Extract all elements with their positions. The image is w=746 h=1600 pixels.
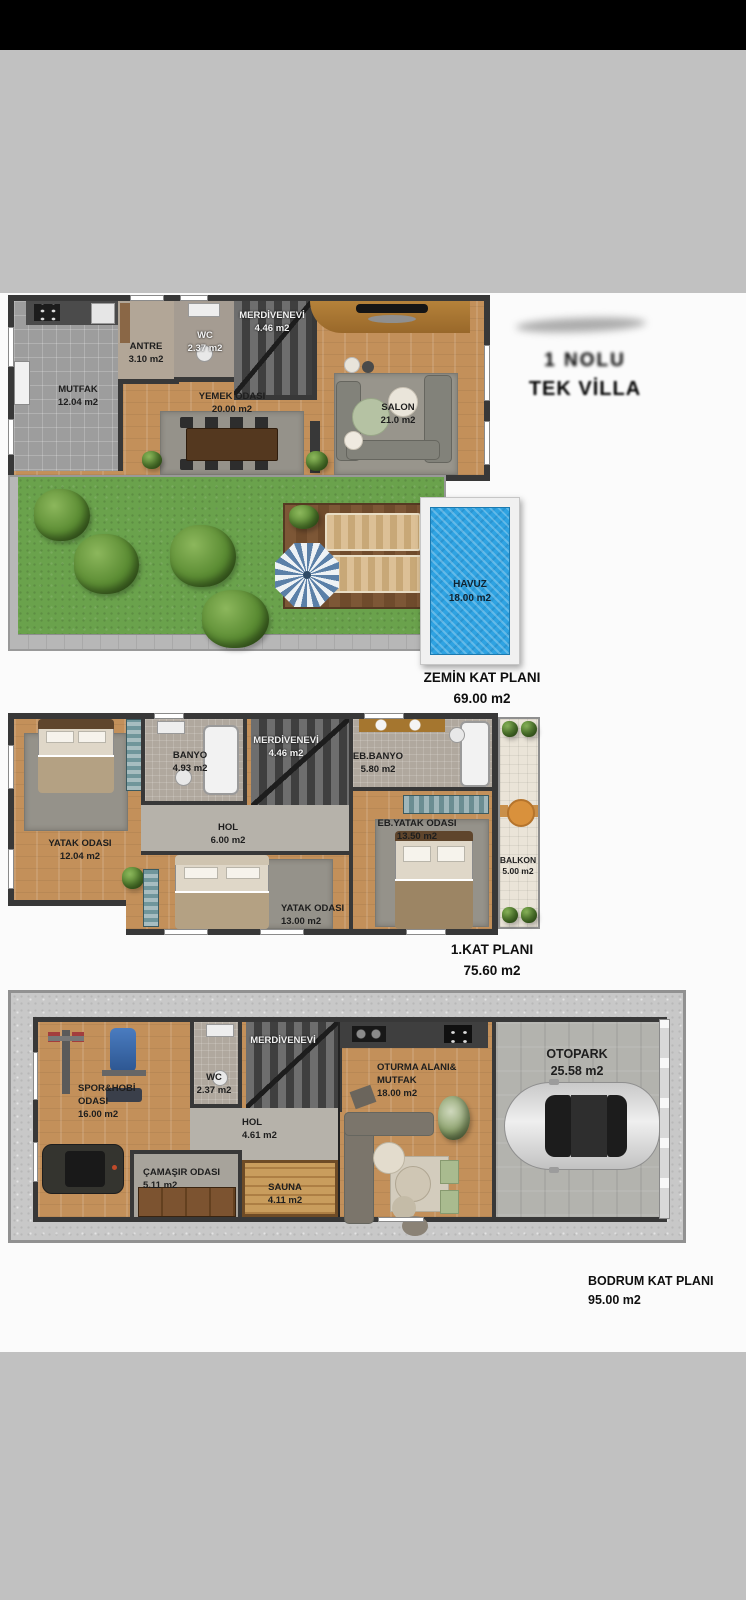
window-top-2: [364, 713, 404, 719]
coffee-table-white: [373, 1142, 405, 1174]
window-left-2: [8, 849, 14, 889]
tv-console: [310, 301, 470, 333]
bed-pillow: [437, 846, 466, 861]
car-roof: [571, 1095, 607, 1157]
bedroom2-bed: [175, 855, 269, 929]
balcony-bush: [521, 907, 537, 923]
bed-pillow: [78, 731, 106, 743]
salon-deco-dot: [362, 361, 374, 373]
room-label-merdivenevi-ground: MERDİVENEVİ4.46 m2: [222, 310, 322, 336]
room-label-mutfak: MUTFAK12.04 m2: [38, 384, 118, 410]
plant-left: [142, 451, 162, 469]
building-notch: [8, 900, 126, 935]
window-bottom-2: [260, 929, 304, 935]
terrace-deck: [283, 503, 423, 609]
vanity-counter: [359, 719, 445, 732]
tv-icon: [356, 304, 428, 313]
room-label-yatak-odasi-1: YATAK ODASI12.04 m2: [30, 838, 130, 864]
room-label-spor-hobi: SPOR&HOBİ ODASI16.00 m2: [78, 1083, 150, 1121]
tree-4: [202, 590, 269, 648]
bed-headboard: [38, 719, 114, 729]
chair-sage: [440, 1160, 459, 1184]
balcony-bush: [502, 721, 518, 737]
kitchen-sink: [14, 361, 30, 405]
window-top-1: [154, 713, 184, 719]
room-label-yatak-odasi-2: YATAK ODASI13.00 m2: [281, 903, 371, 929]
umbrella-icon: [275, 543, 339, 607]
plant-right: [306, 451, 328, 471]
balcony-bush: [521, 721, 537, 737]
window-bottom-3: [406, 929, 446, 935]
room-label-havuz: HAVUZ18.00 m2: [430, 578, 510, 605]
bedroom1-bed: [38, 719, 114, 793]
room-label-sauna: SAUNA4.11 m2: [247, 1182, 323, 1208]
car-mirror: [549, 1167, 559, 1173]
room-label-otopark: OTOPARK25.58 m2: [527, 1046, 627, 1080]
window-right-2: [484, 421, 490, 465]
window-bottom-1: [164, 929, 208, 935]
treadmill-light: [112, 1165, 117, 1170]
top-black-bar: [0, 0, 746, 50]
room-label-camasir-odasi: ÇAMAŞIR ODASI5.11 m2: [143, 1167, 235, 1193]
master-wardrobe: [403, 795, 489, 814]
room-label-salon: SALON21.0 m2: [358, 402, 438, 428]
machine-bar: [102, 1070, 146, 1076]
palm-plant: [289, 505, 319, 529]
tree-2: [74, 534, 139, 594]
umbrella-center: [303, 571, 311, 579]
bed-pillow: [226, 867, 260, 879]
kitchen-counter-basement: [338, 1022, 488, 1048]
sun-lounger-2: [331, 555, 425, 593]
top-gray-band: [0, 50, 746, 293]
bed-pillow: [184, 867, 218, 879]
gym-crossbar: [48, 1036, 84, 1041]
chair-sage: [440, 1190, 459, 1214]
room-label-balkon: BALKON5.00 m2: [494, 855, 542, 878]
bedroom2-wardrobe: [143, 869, 159, 927]
tv-shelf: [368, 315, 416, 323]
window-left-2: [8, 419, 14, 455]
tree-3: [170, 525, 236, 587]
kitchen-counter: [26, 301, 118, 325]
dining-table: [186, 428, 278, 461]
toilet-icon: [449, 727, 465, 743]
wc-sink: [188, 303, 220, 317]
bed-headboard: [175, 855, 269, 865]
window-left-1: [33, 1052, 38, 1100]
window-top-1: [130, 295, 164, 301]
stove-icon: [444, 1025, 472, 1043]
machine-seat: [110, 1028, 136, 1072]
room-label-hol-first: HOL6.00 m2: [188, 822, 268, 848]
balcony-bush: [502, 907, 518, 923]
bed-blanket: [395, 879, 473, 929]
master-bed: [395, 831, 473, 929]
window-left-1: [8, 327, 14, 367]
treadmill-belt: [65, 1151, 105, 1187]
room-label-banyo: BANYO4.93 m2: [150, 750, 230, 776]
sofa-l-horizontal: [344, 1112, 434, 1136]
car-mirror: [549, 1079, 559, 1085]
room-label-oturma-alani: OTURMA ALANI& MUTFAK18.00 m2: [377, 1062, 465, 1100]
tree-1: [34, 489, 90, 541]
sink-unit: [352, 1026, 386, 1042]
stove-icon: [34, 304, 60, 321]
bed-pillow: [46, 731, 74, 743]
window-left-1: [8, 745, 14, 789]
room-label-merdivenevi-basement: MERDİVENEVİ: [233, 1035, 333, 1048]
bed-blanket: [38, 755, 114, 793]
treadmill: [42, 1144, 124, 1194]
living-plant: [438, 1096, 470, 1140]
coffee-table-small: [344, 431, 363, 450]
window-left-2: [33, 1142, 38, 1182]
garage-door: [659, 1019, 670, 1219]
caption-first-floor: 1.KAT PLANI75.60 m2: [392, 940, 592, 982]
armchair-dark: [350, 1085, 377, 1109]
car-rear-window: [607, 1095, 627, 1157]
caption-ground-floor: ZEMİN KAT PLANI69.00 m2: [382, 668, 582, 710]
bathtub-icon: [460, 721, 490, 787]
salon-lamp: [344, 357, 360, 373]
dining-chairs-top: [180, 417, 280, 428]
balcony: [498, 717, 540, 929]
room-label-wc-basement: WC2.37 m2: [186, 1072, 242, 1098]
header-villa-type: TEK VİLLA: [505, 378, 665, 401]
bathroom-sink: [157, 721, 185, 734]
bed-blanket: [175, 891, 269, 929]
room-label-merdivenevi-first: MERDİVENEVİ4.46 m2: [236, 735, 336, 761]
window-bottom-1: [378, 1217, 424, 1222]
balcony-table: [507, 799, 535, 827]
bed-pillow: [403, 846, 432, 861]
bottom-gray-band: [0, 1352, 746, 1600]
car-windshield: [545, 1095, 571, 1157]
header-smudge-mark: [516, 316, 646, 335]
wc-sink: [206, 1024, 234, 1037]
sun-lounger-1: [325, 513, 421, 551]
room-label-eb-yatak-odasi: EB.YATAK ODASI13.50 m2: [362, 818, 472, 844]
window-top-2: [180, 295, 208, 301]
room-label-hol-basement: HOL4.61 m2: [242, 1117, 312, 1143]
window-right-1: [484, 345, 490, 401]
header-villa-number: 1 NOLU: [505, 350, 665, 372]
floor-plan-ground: [8, 295, 520, 668]
car-icon: [504, 1082, 660, 1170]
room-label-yemek-odasi: YEMEK ODASI20.00 m2: [172, 391, 292, 417]
fridge-icon: [91, 303, 115, 324]
entry-door: [120, 303, 130, 343]
caption-basement-floor: BODRUM KAT PLANI95.00 m2: [588, 1272, 718, 1311]
room-label-eb-banyo: EB.BANYO5.80 m2: [338, 751, 418, 777]
floor-plan-sheet: 1 NOLU TEK VİLLA: [0, 0, 746, 1600]
garden-path-left: [10, 477, 18, 649]
